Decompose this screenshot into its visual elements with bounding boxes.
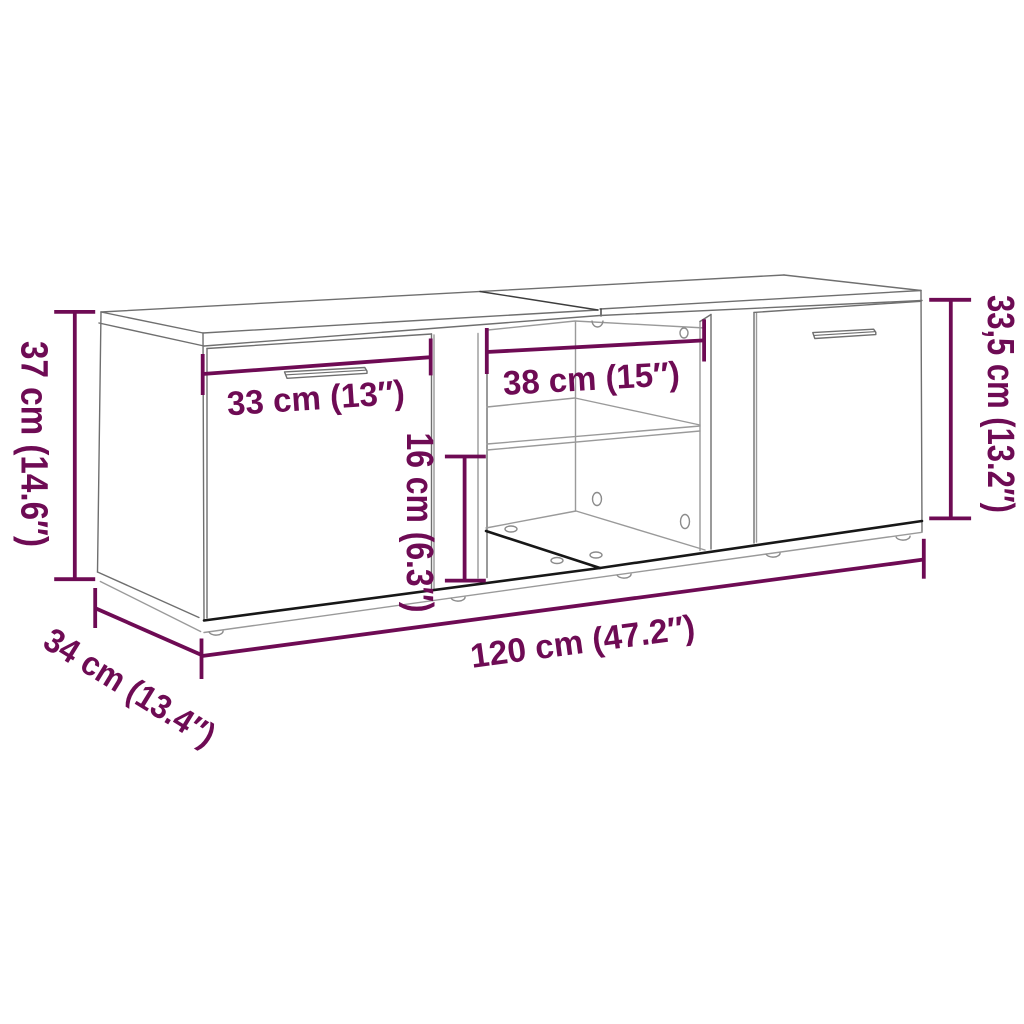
svg-text:33,5 cm (13.2″): 33,5 cm (13.2″) bbox=[979, 295, 1021, 513]
svg-text:37 cm (14.6″): 37 cm (14.6″) bbox=[12, 341, 54, 547]
svg-text:16 cm (6.3″): 16 cm (6.3″) bbox=[398, 433, 440, 613]
